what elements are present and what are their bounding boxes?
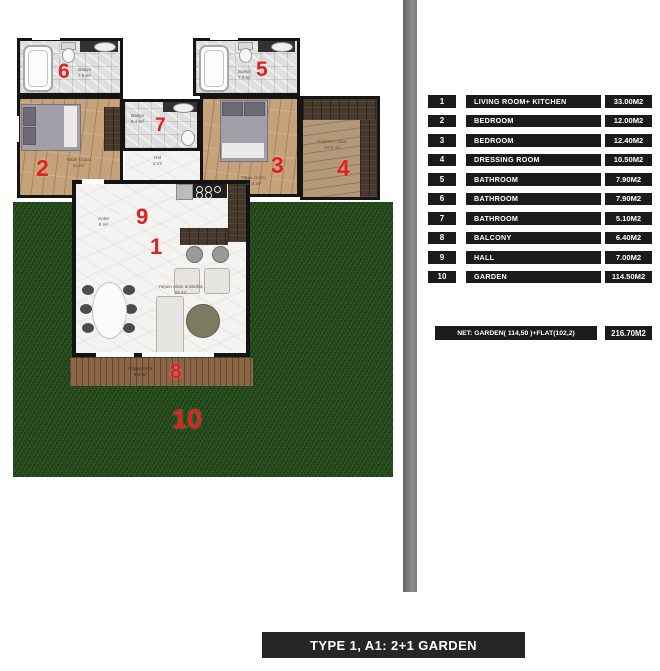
table-row: 1 LIVING ROOM+ KITCHEN 33.00M2 (428, 95, 652, 108)
bed-pillow (23, 107, 36, 126)
window (142, 352, 214, 357)
dining-chair (123, 285, 135, 295)
row-number: 8 (428, 232, 456, 245)
row-area: 5.10M2 (605, 212, 652, 225)
bathtub (199, 45, 229, 92)
table-row: 5 BATHROOM 7.90M2 (428, 173, 652, 186)
sink (271, 42, 293, 52)
room-balcony-8: 8 Ahşap Deck 6.4 m² (70, 358, 253, 386)
window (15, 116, 19, 142)
room-number: 2 (36, 157, 49, 180)
table-row: 4 DRESSING ROOM 10.50M2 (428, 154, 652, 167)
row-number: 6 (428, 193, 456, 206)
row-name: HALL (466, 251, 601, 264)
window (210, 36, 238, 40)
table-row: 6 BATHROOM 7.90M2 (428, 193, 652, 206)
row-area: 33.00M2 (605, 95, 652, 108)
row-number: 4 (428, 154, 456, 167)
row-name: BATHROOM (466, 193, 601, 206)
dining-chair (80, 304, 92, 314)
bed-sheet (222, 143, 264, 158)
row-name: BATHROOM (466, 173, 601, 186)
room-label: Banyo 5.1 m² (131, 113, 144, 124)
bed-sheet (64, 106, 77, 147)
row-number: 1 (428, 95, 456, 108)
room-label: Banyo 7.9 m² (78, 67, 91, 78)
room-living-kitchen: 9 Antre 8 m² 1 Yaşam Alanı & Mutfak 33 m… (72, 180, 250, 357)
kitchen-counter (228, 184, 246, 242)
table-row: 2 BEDROOM 12.00M2 (428, 115, 652, 128)
row-area: 6.40M2 (605, 232, 652, 245)
refrigerator (176, 184, 193, 200)
row-name: BEDROOM (466, 134, 601, 147)
room-dressing-4: 4 Giyinme Odası 10.5 m² (300, 96, 380, 200)
row-number: 3 (428, 134, 456, 147)
row-name: BEDROOM (466, 115, 601, 128)
room-label: Hol 2 m² (153, 155, 162, 166)
room-bathroom-6: 6 Banyo 7.9 m² (17, 38, 123, 96)
bathtub (23, 45, 53, 92)
sofa (156, 296, 184, 355)
net-area: 216.70M2 (605, 326, 652, 340)
dining-chair (82, 323, 94, 333)
table-row: 8 BALCONY 6.40M2 (428, 232, 652, 245)
room-label: Giyinme Odası 10.5 m² (317, 139, 347, 150)
ottoman (186, 304, 220, 338)
row-number: 5 (428, 173, 456, 186)
dining-chair (123, 323, 135, 333)
plan-title: TYPE 1, A1: 2+1 GARDEN (262, 632, 525, 658)
row-area: 114.50M2 (605, 271, 652, 284)
dining-chair (82, 285, 94, 295)
room-number: 5 (256, 59, 268, 80)
bed-pillow (244, 102, 265, 116)
row-area: 7.90M2 (605, 193, 652, 206)
dining-table (92, 282, 127, 339)
table-row: 7 BATHROOM 5.10M2 (428, 212, 652, 225)
net-label: NET: GARDEN( 114,50 )+FLAT(102,2) (435, 326, 597, 340)
kitchen-island (180, 228, 228, 245)
room-label: Antre 8 m² (98, 216, 109, 227)
table-row: 9 HALL 7.00M2 (428, 251, 652, 264)
row-area: 10.50M2 (605, 154, 652, 167)
bar-stool (212, 246, 229, 263)
sink (94, 42, 116, 52)
wardrobe (303, 99, 377, 120)
room-bathroom-5: 5 Banyo 7.9 m² (193, 38, 300, 96)
divider-bar (403, 0, 417, 592)
room-number-hall: 9 (136, 206, 148, 228)
window (32, 36, 60, 40)
wardrobe (360, 120, 377, 197)
room-number: 7 (155, 116, 166, 135)
toilet (181, 130, 195, 146)
net-total-row: NET: GARDEN( 114,50 )+FLAT(102,2) 216.70… (435, 326, 652, 340)
room-legend-table: 1 LIVING ROOM+ KITCHEN 33.00M2 2 BEDROOM… (428, 95, 652, 290)
row-name: DRESSING ROOM (466, 154, 601, 167)
row-number: 7 (428, 212, 456, 225)
bed-pillow (222, 102, 243, 116)
room-number-garden: 10 (172, 406, 202, 433)
row-name: BALCONY (466, 232, 601, 245)
room-label: Ahşap Deck 6.4 m² (128, 366, 153, 377)
room-number: 3 (271, 154, 284, 177)
row-number: 2 (428, 115, 456, 128)
floor-plan-page: 10 6 Banyo 7.9 m² 5 Banyo 7.9 m² 2 (0, 0, 660, 671)
room-bathroom-7: 7 Banyo 5.1 m² (122, 99, 200, 151)
window (96, 352, 134, 357)
row-number: 10 (428, 271, 456, 284)
room-label: Yatak Odası 12 m² (66, 157, 91, 168)
row-name: GARDEN (466, 271, 601, 284)
room-number: 6 (58, 61, 70, 82)
row-area: 12.40M2 (605, 134, 652, 147)
table-row: 3 BEDROOM 12.40M2 (428, 134, 652, 147)
wardrobe (104, 107, 120, 151)
room-number: 8 (170, 361, 182, 382)
toilet (239, 48, 252, 63)
room-label: Banyo 7.9 m² (238, 69, 251, 80)
room-number: 4 (337, 157, 350, 180)
door-opening (82, 179, 104, 184)
bed-pillow (23, 127, 36, 145)
stove (193, 184, 227, 198)
row-name: LIVING ROOM+ KITCHEN (466, 95, 601, 108)
sink (173, 103, 194, 113)
row-area: 7.90M2 (605, 173, 652, 186)
room-number-living: 1 (150, 236, 162, 258)
armchair (204, 268, 230, 294)
row-name: BATHROOM (466, 212, 601, 225)
row-number: 9 (428, 251, 456, 264)
room-label: Yaşam Alanı & Mutfak 33 m² (158, 284, 203, 295)
room-label: Yatak Odası 12.4 m² (241, 175, 266, 186)
row-area: 7.00M2 (605, 251, 652, 264)
room-hol: Hol 2 m² (125, 151, 200, 180)
bar-stool (186, 246, 203, 263)
table-row: 10 GARDEN 114.50M2 (428, 271, 652, 284)
row-area: 12.00M2 (605, 115, 652, 128)
